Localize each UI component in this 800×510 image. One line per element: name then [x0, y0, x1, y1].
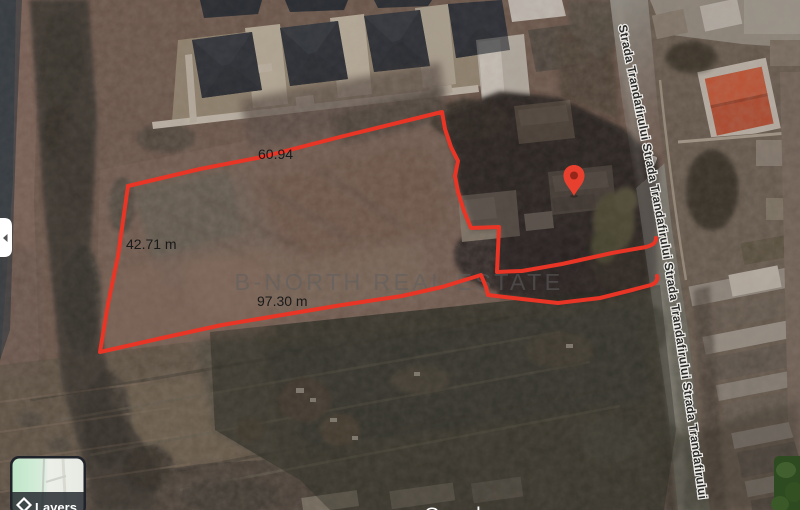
svg-text:97.30 m: 97.30 m: [257, 293, 308, 309]
svg-text:Layers: Layers: [35, 500, 77, 510]
svg-text:60.94: 60.94: [258, 146, 293, 162]
svg-text:42.71 m: 42.71 m: [126, 236, 177, 252]
svg-text:Google: Google: [424, 504, 493, 510]
